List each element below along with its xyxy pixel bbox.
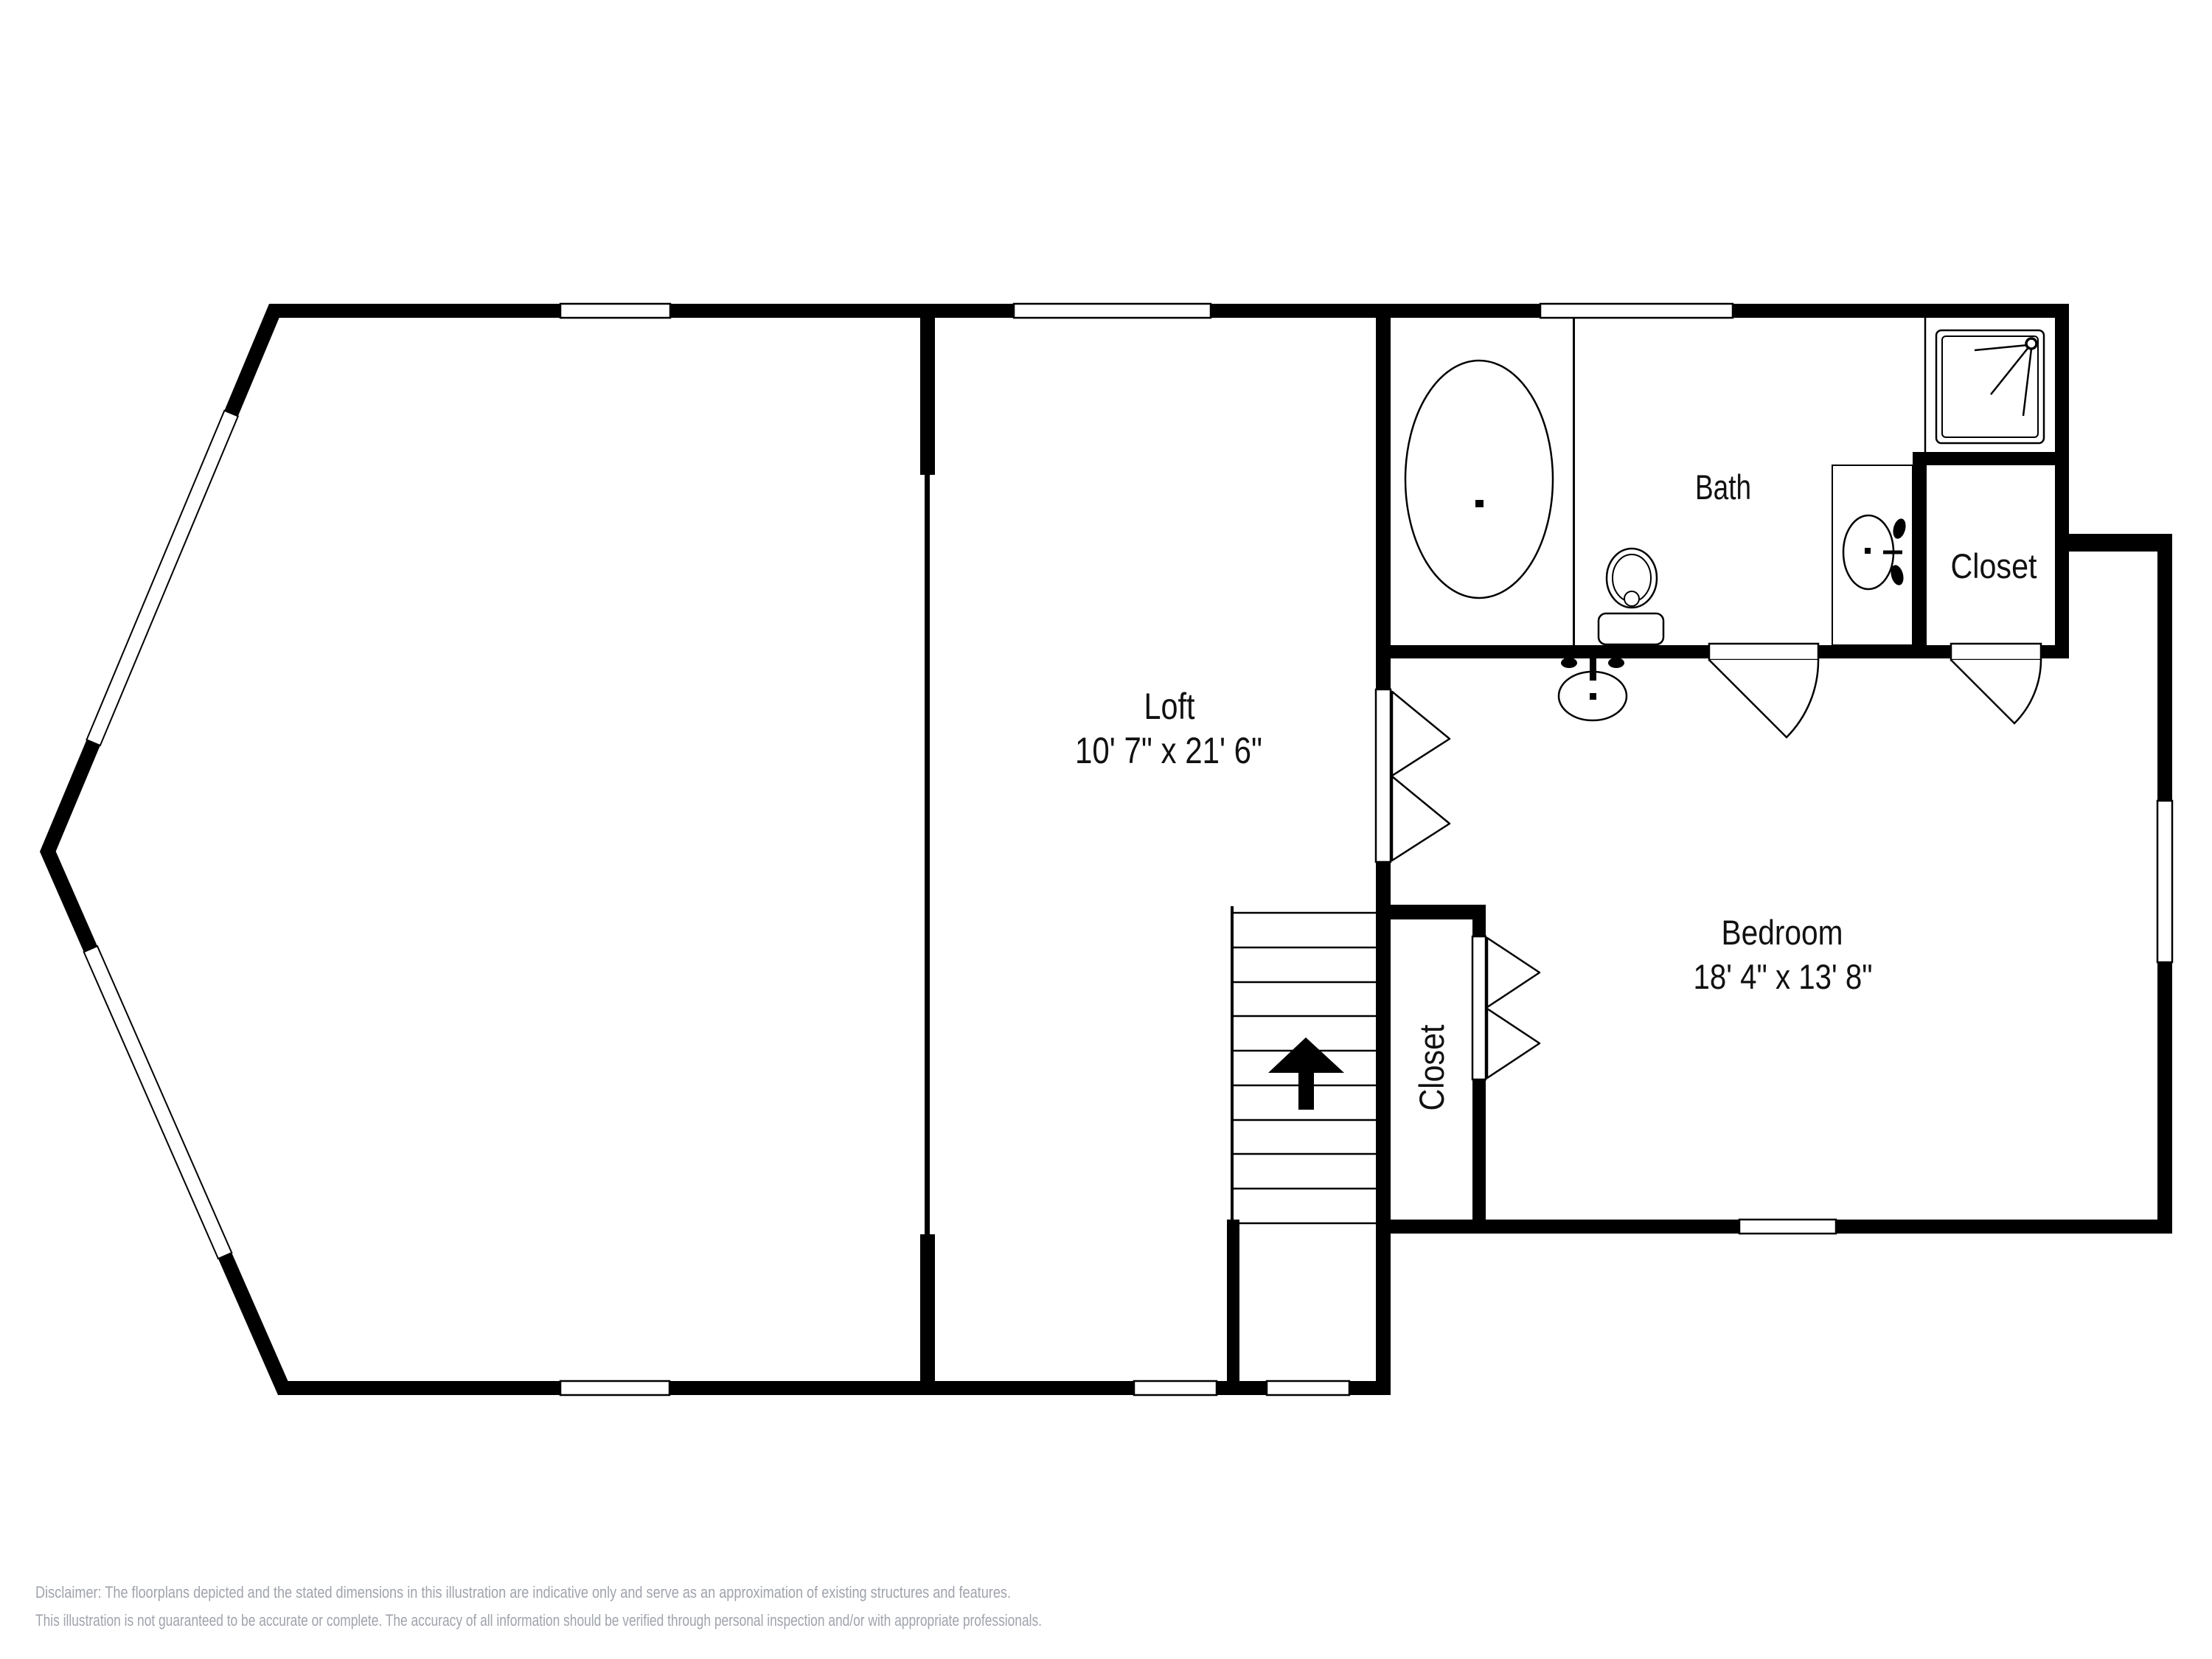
svg-text:Closet: Closet bbox=[1412, 1025, 1451, 1111]
svg-text:Bath: Bath bbox=[1695, 467, 1751, 507]
svg-text:This illustration is not guara: This illustration is not guaranteed to b… bbox=[35, 1611, 1042, 1630]
svg-text:Closet: Closet bbox=[1951, 546, 2037, 585]
svg-text:Bedroom: Bedroom bbox=[1722, 913, 1843, 952]
svg-text:Disclaimer: The floorplans dep: Disclaimer: The floorplans depicted and … bbox=[35, 1583, 1011, 1601]
svg-text:18' 4" x 13' 8": 18' 4" x 13' 8" bbox=[1694, 957, 1873, 996]
svg-text:10' 7" x 21' 6": 10' 7" x 21' 6" bbox=[1075, 730, 1262, 771]
svg-text:Loft: Loft bbox=[1144, 686, 1195, 727]
